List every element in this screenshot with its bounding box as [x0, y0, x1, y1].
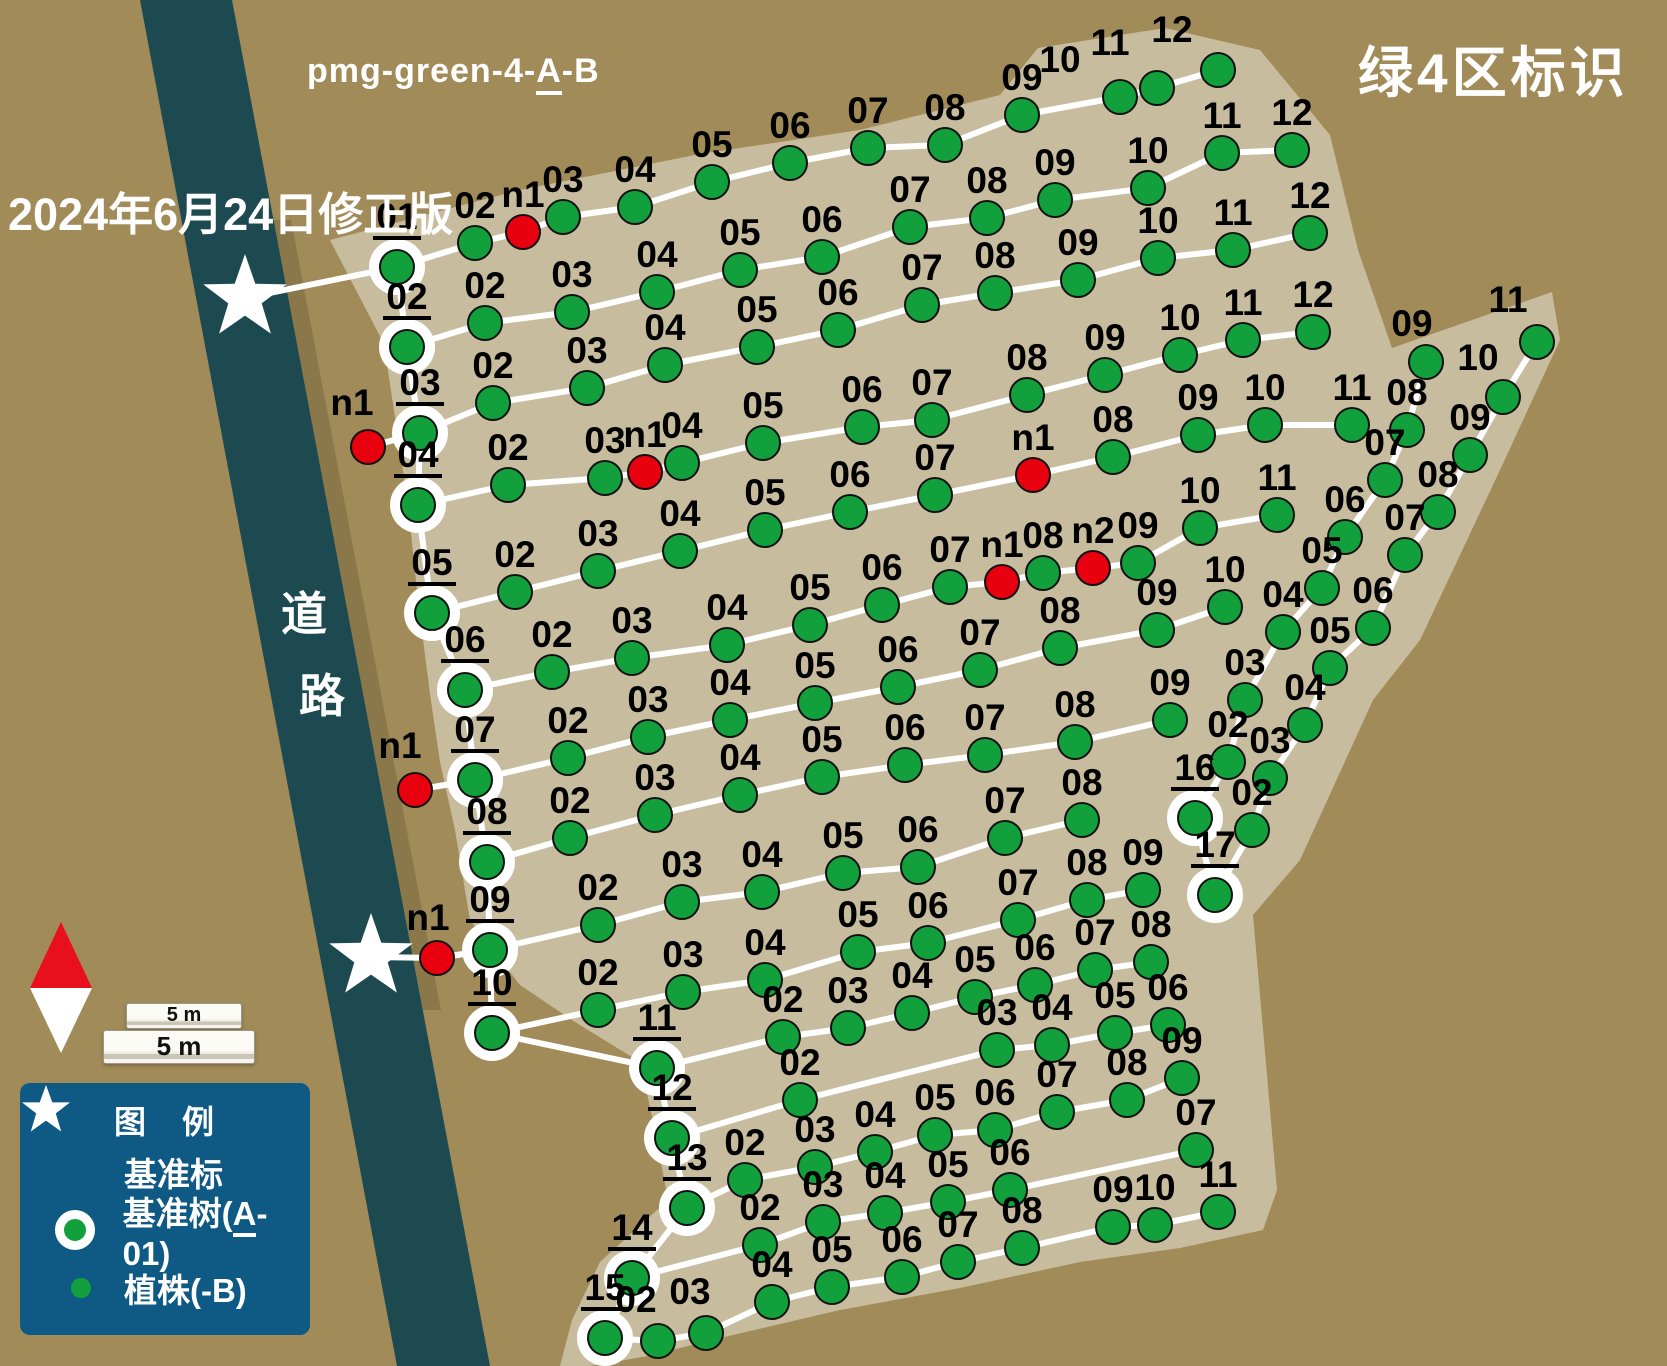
tree-label-04-10: 10 — [1159, 297, 1200, 338]
tree-dot-02-09[interactable] — [1038, 183, 1072, 217]
tree-label-07-n1: n1 — [378, 725, 421, 766]
tree-dot-15-07[interactable] — [941, 1245, 975, 1279]
tree-label-03-03: 03 — [566, 330, 607, 371]
tree-dot-09-06[interactable] — [901, 850, 935, 884]
plot-id-underlined-letter: A — [536, 52, 562, 95]
tree-label-05-10: 10 — [1244, 367, 1285, 408]
tree-label-03-09: 09 — [1057, 222, 1098, 263]
tree-label-11-04: 04 — [891, 955, 933, 996]
tree-label-03-03: 03 — [399, 362, 440, 403]
tree-label-15-02: 02 — [615, 1279, 656, 1320]
tree-dot-06-10[interactable] — [1183, 511, 1217, 545]
legend-label-plant: 植株(-B) — [124, 1264, 247, 1312]
tree-dot-15-09[interactable] — [1096, 1210, 1130, 1244]
tree-label-10-03: 03 — [662, 934, 703, 975]
tree-label-11-06: 06 — [1014, 927, 1055, 968]
tree-dot-06-04[interactable] — [710, 628, 744, 662]
tree-label-04-11: 11 — [1223, 282, 1262, 323]
tree-dot-06-02[interactable] — [535, 655, 569, 689]
tree-dot-04-04[interactable] — [401, 488, 435, 522]
tree-dot-05-04[interactable] — [663, 534, 697, 568]
tree-label-09-09: 09 — [469, 879, 510, 920]
tree-dot-01-08[interactable] — [928, 128, 962, 162]
tree-label-06-n1: n1 — [980, 524, 1023, 565]
tree-label-02-03: 03 — [551, 254, 592, 295]
tree-label-02-04: 04 — [636, 234, 678, 275]
tree-dot-03-10[interactable] — [1141, 241, 1175, 275]
tree-dot-08-07[interactable] — [968, 738, 1002, 772]
tree-dot-01-12[interactable] — [1201, 53, 1235, 87]
tree-dot-07-02[interactable] — [551, 741, 585, 775]
tree-dot-03-07[interactable] — [905, 288, 939, 322]
tree-dot-05-05[interactable] — [748, 513, 782, 547]
tree-dot-17-02[interactable] — [1235, 813, 1269, 847]
tree-label-16-04: 04 — [1262, 574, 1304, 615]
tree-dot-05-10[interactable] — [1248, 408, 1282, 442]
tree-dot-09-07[interactable] — [988, 821, 1022, 855]
tree-dot-02-08[interactable] — [970, 201, 1004, 235]
tree-dot-03-02[interactable] — [476, 386, 510, 420]
tree-dot-02-11[interactable] — [1205, 136, 1239, 170]
tree-label-01-07: 07 — [847, 90, 888, 131]
tree-label-08-05: 05 — [801, 719, 842, 760]
tree-label-03-10: 10 — [1137, 200, 1178, 241]
tree-label-02-12: 12 — [1271, 92, 1312, 133]
tree-label-03-11: 11 — [1213, 192, 1252, 233]
tree-label-11-07: 07 — [1074, 912, 1115, 953]
legend-panel: 图 例 基准标 基准树(A-01) 植株(-B) — [20, 1083, 310, 1335]
plot-id-prefix: pmg-green-4- — [307, 52, 536, 90]
tree-dot-07-03[interactable] — [631, 720, 665, 754]
tree-label-14-02: 02 — [739, 1187, 780, 1228]
tree-label-03-06: 06 — [817, 272, 858, 313]
tree-dot-02-04[interactable] — [640, 275, 674, 309]
tree-dot-17-06[interactable] — [1356, 611, 1390, 645]
tree-label-07-03: 03 — [627, 679, 668, 720]
tree-dot-12-03[interactable] — [980, 1033, 1014, 1067]
tree-dot-11-04[interactable] — [895, 996, 929, 1030]
tree-label-14-04: 04 — [864, 1155, 906, 1196]
tree-label-15-09: 09 — [1092, 1169, 1133, 1210]
tree-label-09-n1: n1 — [406, 897, 449, 938]
tree-dot-17-17[interactable] — [1198, 878, 1232, 912]
tree-label-15-08: 08 — [1001, 1190, 1042, 1231]
tree-label-15-04: 04 — [751, 1244, 793, 1285]
scale-bar-small-label: 5 m — [167, 1004, 201, 1027]
tree-label-10-09: 09 — [1122, 832, 1163, 873]
revision-date-title: 2024年6月24日修正版 — [8, 178, 453, 243]
tree-label-17-09: 09 — [1449, 397, 1490, 438]
tree-dot-05-09[interactable] — [1181, 418, 1215, 452]
tree-label-02-07: 07 — [889, 169, 930, 210]
tree-dot-05-07[interactable] — [918, 478, 952, 512]
tree-label-12-04: 04 — [1031, 987, 1073, 1028]
replacement-dot-03-n1[interactable] — [351, 430, 385, 464]
tree-dot-04-05[interactable] — [746, 426, 780, 460]
tree-dot-03-11[interactable] — [1216, 233, 1250, 267]
tree-label-06-05: 05 — [789, 567, 830, 608]
tree-dot-07-09[interactable] — [1140, 613, 1174, 647]
tree-label-01-11: 11 — [1090, 22, 1129, 63]
tree-label-09-02: 02 — [577, 867, 618, 908]
legend-item-benchmark-tree: 基准树(A-01) — [20, 1201, 310, 1259]
tree-label-05-n1: n1 — [1011, 417, 1054, 458]
tree-label-12-03: 03 — [976, 992, 1017, 1033]
tree-dot-07-08[interactable] — [1043, 631, 1077, 665]
plant-dot-icon — [71, 1278, 91, 1298]
tree-dot-03-08[interactable] — [978, 276, 1012, 310]
tree-label-04-12: 12 — [1292, 274, 1333, 315]
tree-dot-08-04[interactable] — [723, 778, 757, 812]
tree-dot-01-10[interactable] — [1103, 80, 1137, 114]
tree-dot-08-09[interactable] — [1153, 703, 1187, 737]
tree-label-03-08: 08 — [974, 235, 1015, 276]
tree-dot-15-08[interactable] — [1005, 1231, 1039, 1265]
tree-label-03-12: 12 — [1289, 175, 1330, 216]
tree-label-05-09: 09 — [1177, 377, 1218, 418]
legend-bench-prefix: 基准树( — [123, 1195, 233, 1232]
tree-label-07-07: 07 — [959, 612, 1000, 653]
plot-id-title: pmg-green-4-A-B — [307, 52, 600, 91]
replacement-dot-07-n1[interactable] — [398, 773, 432, 807]
tree-dot-01-11[interactable] — [1140, 71, 1174, 105]
tree-label-13-04: 04 — [854, 1094, 896, 1135]
tree-label-15-11: 11 — [1198, 1154, 1237, 1195]
zone-title: 绿4区标识 — [1358, 28, 1629, 108]
tree-label-06-07: 07 — [929, 529, 970, 570]
tree-dot-09-08[interactable] — [1065, 803, 1099, 837]
tree-label-06-06: 06 — [861, 547, 902, 588]
tree-dot-02-06[interactable] — [805, 240, 839, 274]
tree-label-14-07: 07 — [1175, 1092, 1216, 1133]
tree-dot-10-09[interactable] — [1126, 873, 1160, 907]
tree-dot-10-10[interactable] — [475, 1016, 509, 1050]
tree-dot-08-02[interactable] — [553, 821, 587, 855]
tree-label-04-04: 04 — [397, 434, 439, 475]
tree-label-06-03: 03 — [611, 600, 652, 641]
tree-label-06-02: 02 — [531, 614, 572, 655]
tree-dot-08-08[interactable] — [1058, 725, 1092, 759]
tree-label-04-04: 04 — [661, 405, 703, 446]
tree-dot-10-05[interactable] — [841, 935, 875, 969]
tree-dot-04-11[interactable] — [1226, 323, 1260, 357]
tree-label-08-02: 02 — [549, 780, 590, 821]
tree-label-17-02: 02 — [1231, 772, 1272, 813]
tree-label-09-07: 07 — [984, 780, 1025, 821]
tree-dot-01-02[interactable] — [458, 226, 492, 260]
tree-label-10-10: 10 — [471, 962, 512, 1003]
tree-dot-08-05[interactable] — [805, 760, 839, 794]
tree-label-16-07: 07 — [1364, 422, 1405, 463]
tree-label-16-16: 16 — [1174, 747, 1215, 788]
tree-label-05-05: 05 — [744, 472, 785, 513]
tree-label-13-13: 13 — [666, 1137, 707, 1178]
tree-dot-08-08[interactable] — [470, 845, 504, 879]
tree-dot-06-03[interactable] — [615, 641, 649, 675]
tree-label-13-03: 03 — [794, 1109, 835, 1150]
replacement-dot-06-n1[interactable] — [985, 565, 1019, 599]
tree-dot-08-03[interactable] — [638, 798, 672, 832]
tree-dot-16-05[interactable] — [1305, 571, 1339, 605]
tree-dot-15-02[interactable] — [641, 1324, 675, 1358]
tree-dot-01-09[interactable] — [1005, 98, 1039, 132]
tree-label-07-10: 10 — [1204, 549, 1245, 590]
tree-dot-04-03[interactable] — [588, 461, 622, 495]
scale-bar-large-label: 5 m — [157, 1031, 202, 1062]
tree-label-08-08: 08 — [466, 791, 507, 832]
tree-label-07-06: 06 — [877, 629, 918, 670]
tree-dot-15-05[interactable] — [815, 1270, 849, 1304]
tree-label-06-04: 04 — [706, 587, 748, 628]
tree-label-17-05: 05 — [1309, 610, 1350, 651]
tree-dot-02-12[interactable] — [1275, 133, 1309, 167]
tree-dot-06-07[interactable] — [933, 570, 967, 604]
tree-dot-04-02[interactable] — [491, 468, 525, 502]
tree-label-15-06: 06 — [881, 1219, 922, 1260]
replacement-dot-05-n1[interactable] — [1016, 458, 1050, 492]
tree-dot-04-09[interactable] — [1088, 358, 1122, 392]
tree-label-11-02: 02 — [762, 979, 803, 1020]
tree-dot-03-06[interactable] — [821, 313, 855, 347]
tree-label-04-08: 08 — [1006, 337, 1047, 378]
tree-label-06-08: 08 — [1022, 515, 1063, 556]
tree-dot-04-04[interactable] — [665, 446, 699, 480]
tree-label-01-n1: n1 — [501, 174, 544, 215]
tree-label-17-06: 06 — [1352, 570, 1393, 611]
tree-label-03-02: 02 — [472, 345, 513, 386]
tree-dot-07-04[interactable] — [713, 703, 747, 737]
tree-label-04-07: 07 — [911, 362, 952, 403]
tree-dot-02-07[interactable] — [893, 210, 927, 244]
tree-label-17-04: 04 — [1284, 667, 1326, 708]
tree-dot-09-05[interactable] — [826, 856, 860, 890]
tree-dot-01-03[interactable] — [546, 200, 580, 234]
tree-label-08-09: 09 — [1149, 662, 1190, 703]
tree-dot-10-02[interactable] — [581, 993, 615, 1027]
tree-label-01-12: 12 — [1151, 9, 1192, 50]
tree-label-05-04: 04 — [659, 493, 701, 534]
tree-dot-06-06[interactable] — [448, 673, 482, 707]
tree-dot-13-07[interactable] — [1040, 1095, 1074, 1129]
tree-label-05-03: 03 — [577, 513, 618, 554]
tree-dot-15-11[interactable] — [1201, 1195, 1235, 1229]
tree-dot-09-03[interactable] — [665, 885, 699, 919]
tree-label-02-02: 02 — [386, 276, 427, 317]
tree-dot-06-11[interactable] — [1260, 498, 1294, 532]
tree-dot-04-10[interactable] — [1163, 338, 1197, 372]
tree-label-03-n1: n1 — [330, 382, 373, 423]
tree-dot-04-07[interactable] — [915, 403, 949, 437]
tree-label-08-03: 03 — [634, 757, 675, 798]
tree-label-04-n1: n1 — [623, 414, 666, 455]
tree-dot-16-04[interactable] — [1266, 615, 1300, 649]
tree-label-01-02: 02 — [454, 185, 495, 226]
tree-label-14-05: 05 — [927, 1144, 968, 1185]
tree-label-14-03: 03 — [802, 1164, 843, 1205]
tree-label-10-04: 04 — [744, 922, 786, 963]
tree-dot-17-07[interactable] — [1388, 538, 1422, 572]
tree-label-06-n2: n2 — [1071, 510, 1114, 551]
tree-label-02-09: 09 — [1034, 142, 1075, 183]
tree-dot-08-06[interactable] — [888, 748, 922, 782]
tree-label-09-05: 05 — [822, 815, 863, 856]
tree-label-11-05: 05 — [954, 939, 995, 980]
tree-label-08-04: 04 — [719, 737, 761, 778]
tree-dot-03-03[interactable] — [570, 371, 604, 405]
tree-dot-05-06[interactable] — [833, 495, 867, 529]
tree-label-05-05: 05 — [411, 542, 452, 583]
tree-label-05-07: 07 — [914, 437, 955, 478]
tree-dot-03-12[interactable] — [1293, 216, 1327, 250]
replacement-dot-04-n1[interactable] — [628, 455, 662, 489]
legend-bench-underlined-letter: A — [233, 1195, 257, 1237]
tree-label-13-07: 07 — [1036, 1054, 1077, 1095]
tree-label-02-10: 10 — [1127, 130, 1168, 171]
tree-dot-09-04[interactable] — [745, 875, 779, 909]
tree-dot-07-10[interactable] — [1208, 590, 1242, 624]
tree-dot-15-04[interactable] — [755, 1285, 789, 1319]
tree-label-02-05: 05 — [719, 212, 760, 253]
tree-dot-02-02[interactable] — [468, 306, 502, 340]
tree-label-16-06: 06 — [1324, 479, 1365, 520]
replacement-dot-06-n2[interactable] — [1076, 551, 1110, 585]
tree-label-09-04: 04 — [741, 834, 783, 875]
tree-label-08-07: 07 — [964, 697, 1005, 738]
tree-dot-06-06[interactable] — [865, 588, 899, 622]
tree-label-04-05: 05 — [742, 385, 783, 426]
tree-dot-17-10[interactable] — [1486, 380, 1520, 414]
replacement-dot-09-n1[interactable] — [420, 941, 454, 975]
tree-dot-11-03[interactable] — [831, 1011, 865, 1045]
tree-label-06-06: 06 — [444, 619, 485, 660]
tree-dot-03-05[interactable] — [740, 330, 774, 364]
tree-label-01-09: 09 — [1001, 57, 1042, 98]
tree-label-10-05: 05 — [837, 894, 878, 935]
tree-dot-13-09[interactable] — [1165, 1061, 1199, 1095]
tree-label-16-09: 09 — [1391, 303, 1432, 344]
tree-label-12-12: 12 — [651, 1067, 692, 1108]
tree-label-09-03: 03 — [661, 844, 702, 885]
planting-map-page: 0102n10304050607080910111202020304050607… — [0, 0, 1667, 1366]
tree-label-17-03: 03 — [1249, 720, 1290, 761]
tree-dot-03-04[interactable] — [648, 348, 682, 382]
tree-label-11-08: 08 — [1130, 904, 1171, 945]
tree-label-09-08: 08 — [1061, 762, 1102, 803]
tree-label-17-08: 08 — [1417, 454, 1458, 495]
tree-label-15-07: 07 — [937, 1204, 978, 1245]
tree-dot-16-07[interactable] — [1368, 463, 1402, 497]
tree-label-07-07: 07 — [454, 709, 495, 750]
tree-dot-06-05[interactable] — [793, 608, 827, 642]
tree-label-01-06: 06 — [769, 105, 810, 146]
tree-label-05-11: 11 — [1332, 367, 1371, 408]
tree-label-02-11: 11 — [1202, 95, 1241, 136]
tree-dot-17-04[interactable] — [1288, 708, 1322, 742]
tree-dot-01-07[interactable] — [851, 131, 885, 165]
tree-dot-02-02[interactable] — [390, 330, 424, 364]
tree-dot-17-11[interactable] — [1520, 325, 1554, 359]
tree-label-10-07: 07 — [997, 862, 1038, 903]
tree-dot-15-10[interactable] — [1138, 1208, 1172, 1242]
tree-dot-02-05[interactable] — [723, 253, 757, 287]
tree-label-08-06: 06 — [884, 707, 925, 748]
road-label-char-2: 路 — [299, 660, 345, 726]
tree-dot-05-03[interactable] — [581, 554, 615, 588]
tree-label-17-10: 10 — [1457, 337, 1498, 378]
tree-dot-07-07[interactable] — [963, 653, 997, 687]
tree-dot-03-09[interactable] — [1061, 263, 1095, 297]
tree-dot-04-12[interactable] — [1296, 315, 1330, 349]
tree-label-03-04: 04 — [644, 307, 686, 348]
tree-dot-05-08[interactable] — [1096, 440, 1130, 474]
tree-label-12-06: 06 — [1147, 967, 1188, 1008]
legend-label-benchmark-tree: 基准树(A-01) — [123, 1187, 310, 1273]
tree-label-10-08: 08 — [1066, 842, 1107, 883]
tree-label-17-07: 07 — [1384, 497, 1425, 538]
road-label-char-1: 道 — [281, 578, 327, 644]
tree-label-01-08: 08 — [924, 87, 965, 128]
tree-label-09-06: 06 — [897, 809, 938, 850]
tree-label-05-08: 08 — [1092, 399, 1133, 440]
tree-label-16-02: 02 — [1207, 704, 1248, 745]
replacement-dot-01-n1[interactable] — [506, 215, 540, 249]
tree-label-17-17: 17 — [1194, 824, 1235, 865]
tree-label-01-05: 05 — [691, 124, 732, 165]
tree-label-07-09: 09 — [1136, 572, 1177, 613]
tree-dot-07-05[interactable] — [798, 686, 832, 720]
tree-label-06-11: 11 — [1257, 457, 1296, 498]
tree-dot-15-15[interactable] — [588, 1321, 622, 1355]
tree-label-04-09: 09 — [1084, 317, 1125, 358]
tree-label-14-06: 06 — [989, 1132, 1030, 1173]
tree-label-13-08: 08 — [1106, 1042, 1147, 1083]
tree-dot-04-08[interactable] — [1010, 378, 1044, 412]
tree-dot-01-06[interactable] — [773, 146, 807, 180]
tree-dot-01-04[interactable] — [618, 190, 652, 224]
tree-label-17-11: 11 — [1488, 279, 1527, 320]
tree-dot-07-06[interactable] — [881, 670, 915, 704]
tree-label-07-05: 05 — [794, 645, 835, 686]
tree-dot-13-13[interactable] — [670, 1191, 704, 1225]
tree-dot-04-06[interactable] — [845, 410, 879, 444]
tree-dot-05-02[interactable] — [498, 575, 532, 609]
tree-label-15-03: 03 — [669, 1271, 710, 1312]
tree-label-06-10: 10 — [1179, 470, 1220, 511]
tree-label-02-06: 06 — [801, 199, 842, 240]
tree-dot-15-03[interactable] — [689, 1316, 723, 1350]
tree-label-05-02: 02 — [494, 534, 535, 575]
tree-label-16-03: 03 — [1224, 642, 1265, 683]
tree-label-12-02: 02 — [779, 1042, 820, 1083]
tree-dot-02-03[interactable] — [555, 295, 589, 329]
tree-label-13-02: 02 — [724, 1122, 765, 1163]
tree-dot-17-08[interactable] — [1421, 495, 1455, 529]
tree-dot-15-06[interactable] — [885, 1260, 919, 1294]
tree-label-11-11: 11 — [637, 997, 676, 1038]
tree-label-15-10: 10 — [1134, 1167, 1175, 1208]
tree-dot-06-08[interactable] — [1026, 556, 1060, 590]
tree-label-01-10: 10 — [1039, 39, 1080, 80]
tree-dot-01-05[interactable] — [695, 165, 729, 199]
tree-label-06-09: 09 — [1117, 505, 1158, 546]
tree-dot-13-08[interactable] — [1110, 1083, 1144, 1117]
tree-label-16-05: 05 — [1301, 530, 1342, 571]
tree-dot-09-02[interactable] — [581, 908, 615, 942]
tree-label-01-04: 04 — [614, 149, 656, 190]
tree-label-12-05: 05 — [1094, 975, 1135, 1016]
tree-label-16-08: 08 — [1386, 372, 1427, 413]
tree-label-07-04: 04 — [709, 662, 751, 703]
